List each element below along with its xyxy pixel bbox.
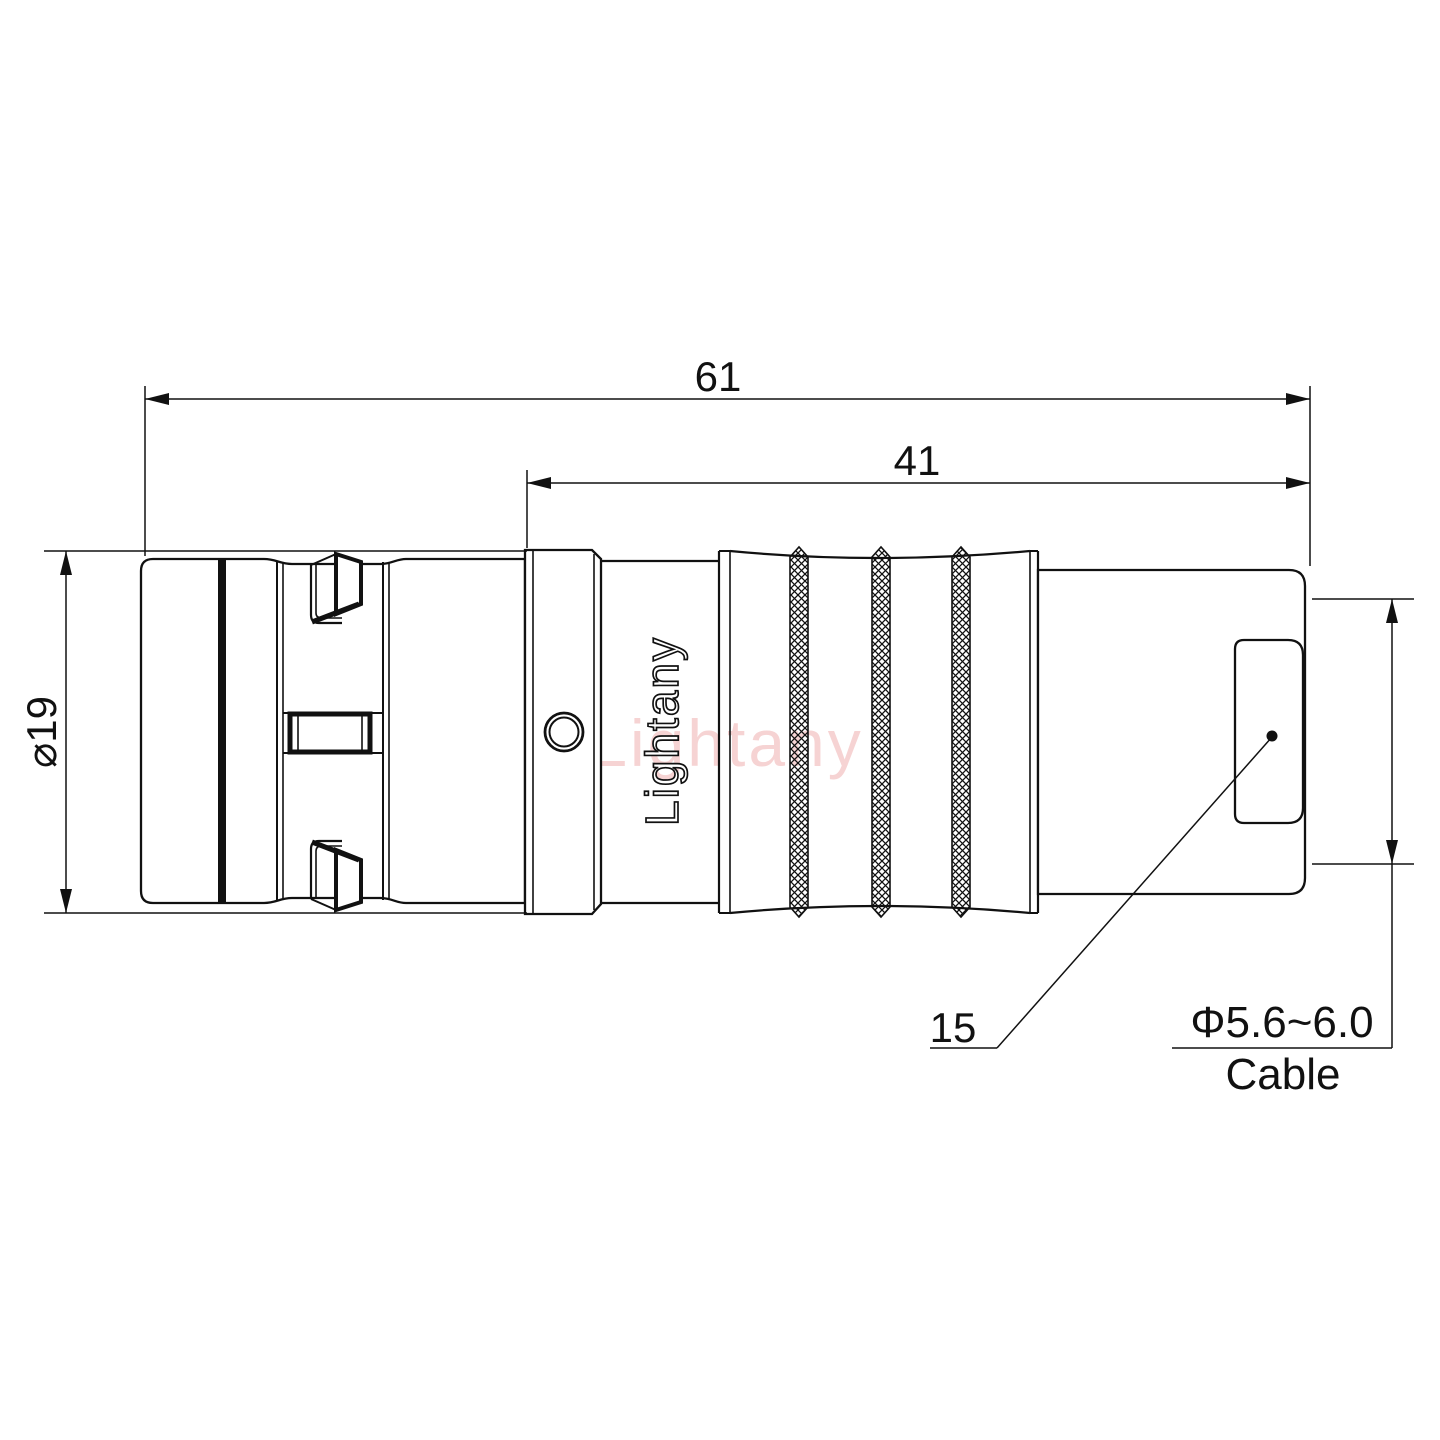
arrowhead-up [1386,599,1398,623]
arrowhead-up [60,551,72,575]
drawing-svg: Lightany [0,0,1440,1440]
dim-label-41: 41 [894,437,941,484]
arrowhead-left [145,393,169,405]
connector-cable-boot [1038,570,1305,894]
arrowhead-right [1286,393,1310,405]
arrowhead-down [60,889,72,913]
arrowhead-right [1286,477,1310,489]
ref-label-15: 15 [930,1004,977,1051]
seal-band [218,560,226,902]
dimension-rear-length: 41 [527,437,1310,548]
technical-drawing-connector: Lightany [0,0,1440,1440]
dimension-overall-length: 61 [145,353,1310,566]
leader-dot [1267,731,1278,742]
engraving-text: Lightany [636,636,688,826]
cable-label: Cable [1226,1050,1341,1099]
knurl-band [952,547,970,917]
key-slot [283,713,383,753]
knurl-band [872,547,890,917]
collar-hole-outer [545,713,583,751]
knurl-band [790,547,808,917]
connector-front-shell [141,554,525,910]
connector-collar [525,550,601,914]
dim-label-61: 61 [695,353,742,400]
arrowhead-down [1386,840,1398,864]
arrowhead-left [527,477,551,489]
cable-range-label: Φ5.6~6.0 [1190,998,1373,1047]
watermark: Lightany [590,706,864,780]
dim-label-diameter: ⌀19 [18,696,65,768]
